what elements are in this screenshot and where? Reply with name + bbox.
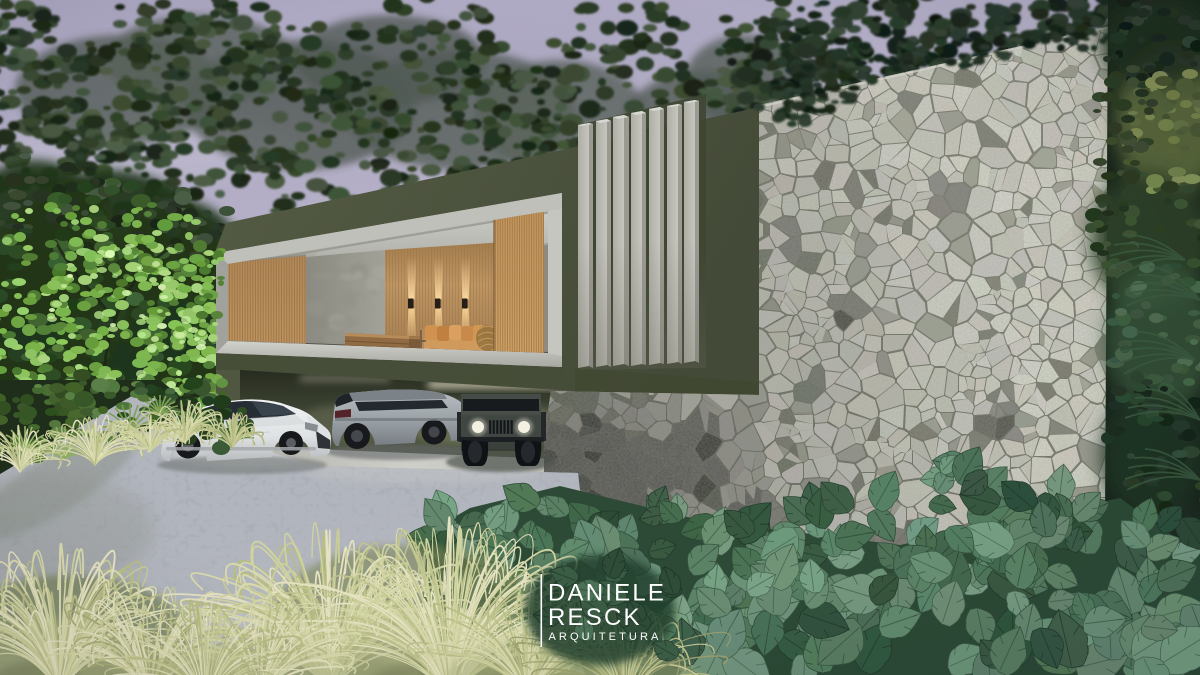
svg-text:ARQUITETURA: ARQUITETURA	[549, 631, 662, 643]
svg-text:DANIELE: DANIELE	[548, 580, 666, 607]
svg-text:RESCK: RESCK	[548, 604, 642, 631]
